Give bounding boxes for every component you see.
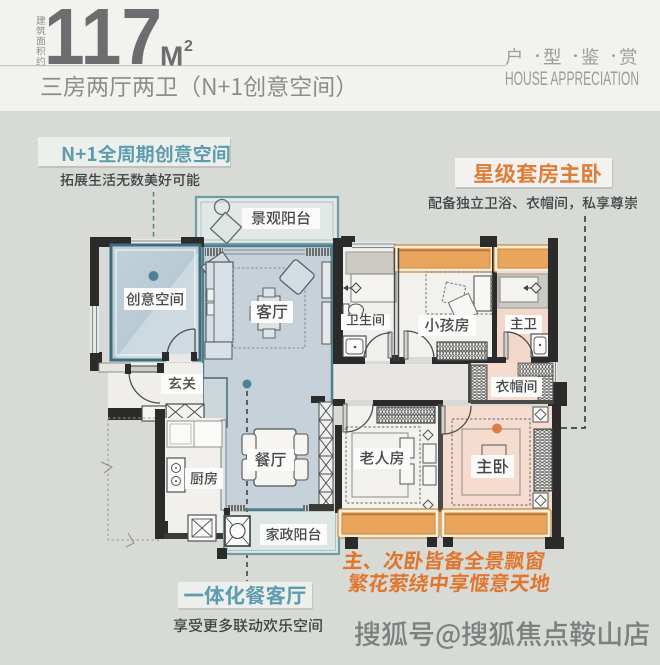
svg-text:HOUSE APPRECIATION: HOUSE APPRECIATION <box>505 69 639 90</box>
svg-text:117: 117 <box>44 0 162 81</box>
svg-text:2: 2 <box>184 38 193 55</box>
svg-text:M: M <box>160 41 183 72</box>
